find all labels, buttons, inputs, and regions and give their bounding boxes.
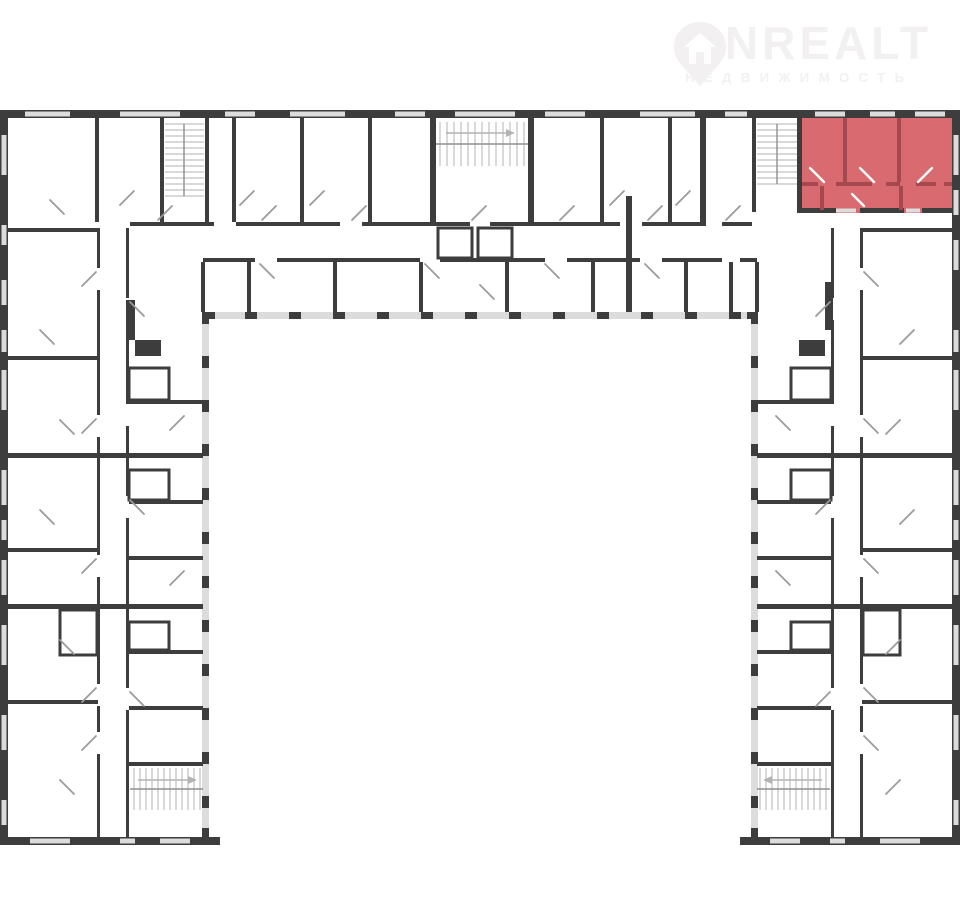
logo: ONREALT НЕДВИЖИМОСТЬ (671, 20, 932, 85)
courtyard-walls (202, 312, 758, 845)
stairwell-top-left (160, 117, 209, 225)
exterior-walls (0, 110, 960, 845)
door-swings (40, 191, 914, 794)
floor-plan-page: ONREALT НЕДВИЖИМОСТЬ (0, 0, 960, 910)
floor-plan (0, 0, 960, 910)
exterior-windows (2, 112, 959, 844)
right-wing-walls (757, 228, 952, 837)
highlighted-apartment[interactable] (802, 117, 952, 213)
stairwell-left-wing (126, 762, 203, 837)
stairwell-top-right (752, 117, 797, 212)
stairwell-right-wing (757, 762, 834, 837)
left-wing-walls (8, 228, 203, 837)
